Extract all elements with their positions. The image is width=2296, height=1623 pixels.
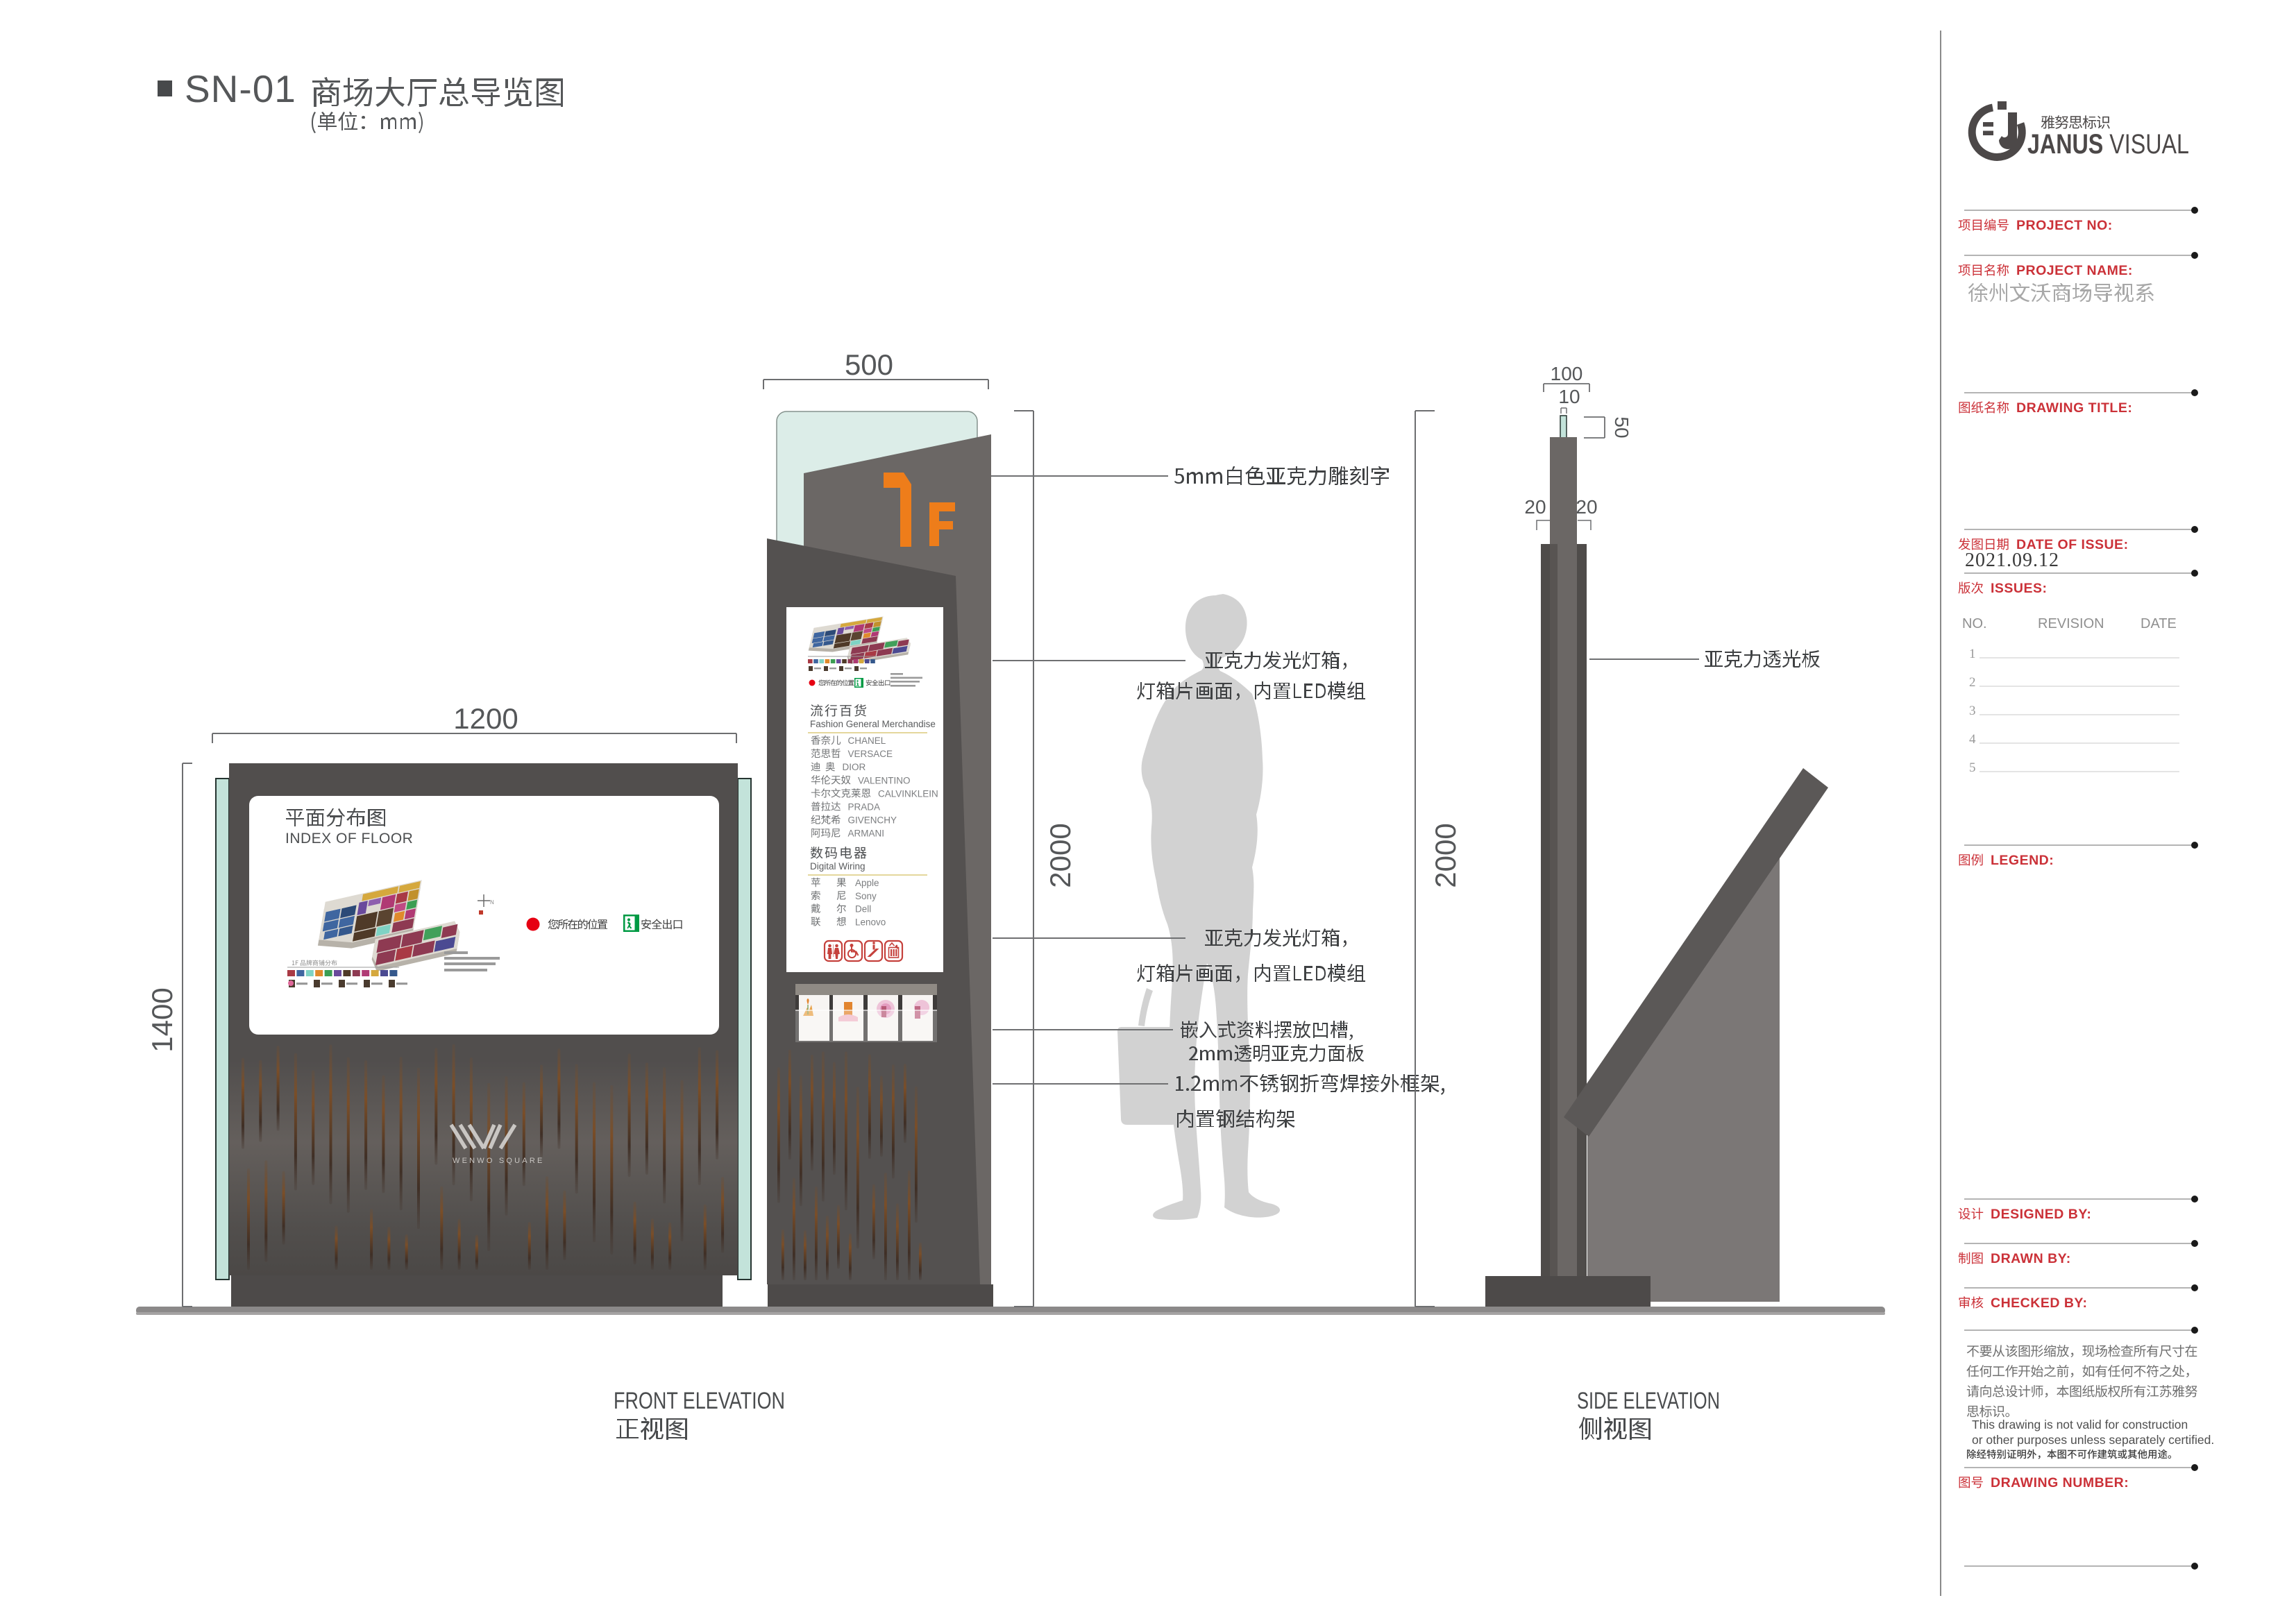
svg-text:Digital Wiring: Digital Wiring [810,861,866,872]
svg-text:2: 2 [1969,675,1976,690]
svg-text:This drawing is not valid for: This drawing is not valid for constructi… [1972,1418,2188,1431]
svg-text:5: 5 [1969,760,1976,775]
svg-text:VALENTINO: VALENTINO [858,775,911,785]
svg-text:DRAWING TITLE:: DRAWING TITLE: [2016,400,2132,416]
svg-text:20: 20 [1524,496,1546,518]
svg-text:or other purposes unless separ: or other purposes unless separately cert… [1972,1433,2214,1447]
svg-text:PROJECT NO:: PROJECT NO: [2016,218,2113,233]
svg-text:SIDE ELEVATION: SIDE ELEVATION [1577,1388,1720,1414]
svg-text:3: 3 [1969,704,1976,718]
svg-text:Dell: Dell [855,904,871,915]
svg-text:N: N [490,899,494,906]
svg-text:4: 4 [1969,732,1976,747]
svg-text:DRAWN BY:: DRAWN BY: [1991,1251,2071,1266]
svg-text:PRADA: PRADA [848,802,881,813]
svg-text:DESIGNED BY:: DESIGNED BY: [1991,1207,2091,1222]
svg-text:VERSACE: VERSACE [848,749,893,759]
svg-text:2000: 2000 [1429,823,1462,887]
svg-text:10: 10 [1558,386,1580,407]
svg-text:DATE: DATE [2141,616,2177,631]
svg-text:CHANEL: CHANEL [848,736,886,746]
svg-text:20: 20 [1576,496,1597,518]
svg-text:1400: 1400 [146,987,178,1052]
svg-text:PROJECT NAME:: PROJECT NAME: [2016,263,2133,278]
svg-text:500: 500 [845,348,893,381]
svg-text:GIVENCHY: GIVENCHY [848,815,897,826]
svg-text:Apple: Apple [855,878,879,888]
svg-text:Sony: Sony [855,891,877,901]
svg-text:CHECKED BY:: CHECKED BY: [1991,1295,2087,1311]
svg-text:NO.: NO. [1962,616,1987,631]
svg-text:100: 100 [1551,363,1583,384]
svg-text:WENWO SQUARE: WENWO SQUARE [453,1157,545,1165]
svg-text:2021.09.12: 2021.09.12 [1965,550,2059,571]
svg-text:DIOR: DIOR [843,762,866,772]
svg-text:LEGEND:: LEGEND: [1991,853,2054,868]
svg-text:ARMANI: ARMANI [848,829,885,839]
svg-text:DRAWING NUMBER:: DRAWING NUMBER: [1991,1475,2129,1490]
svg-text:Fashion General Merchandise: Fashion General Merchandise [810,719,936,729]
svg-text:INDEX OF FLOOR: INDEX OF FLOOR [285,831,413,847]
svg-text:1200: 1200 [453,702,518,735]
svg-text:SN-01: SN-01 [185,67,296,110]
svg-text:REVISION: REVISION [2038,616,2104,631]
svg-text:1: 1 [1969,647,1976,661]
svg-text:2000: 2000 [1044,823,1077,887]
svg-text:ISSUES:: ISSUES: [1991,581,2048,596]
svg-text:50: 50 [1611,416,1632,438]
svg-text:FRONT ELEVATION: FRONT ELEVATION [614,1388,785,1414]
svg-text:Lenovo: Lenovo [855,917,886,927]
svg-text:JANUS VISUAL: JANUS VISUAL [2027,129,2189,160]
svg-text:CALVINKLEIN: CALVINKLEIN [878,788,938,799]
